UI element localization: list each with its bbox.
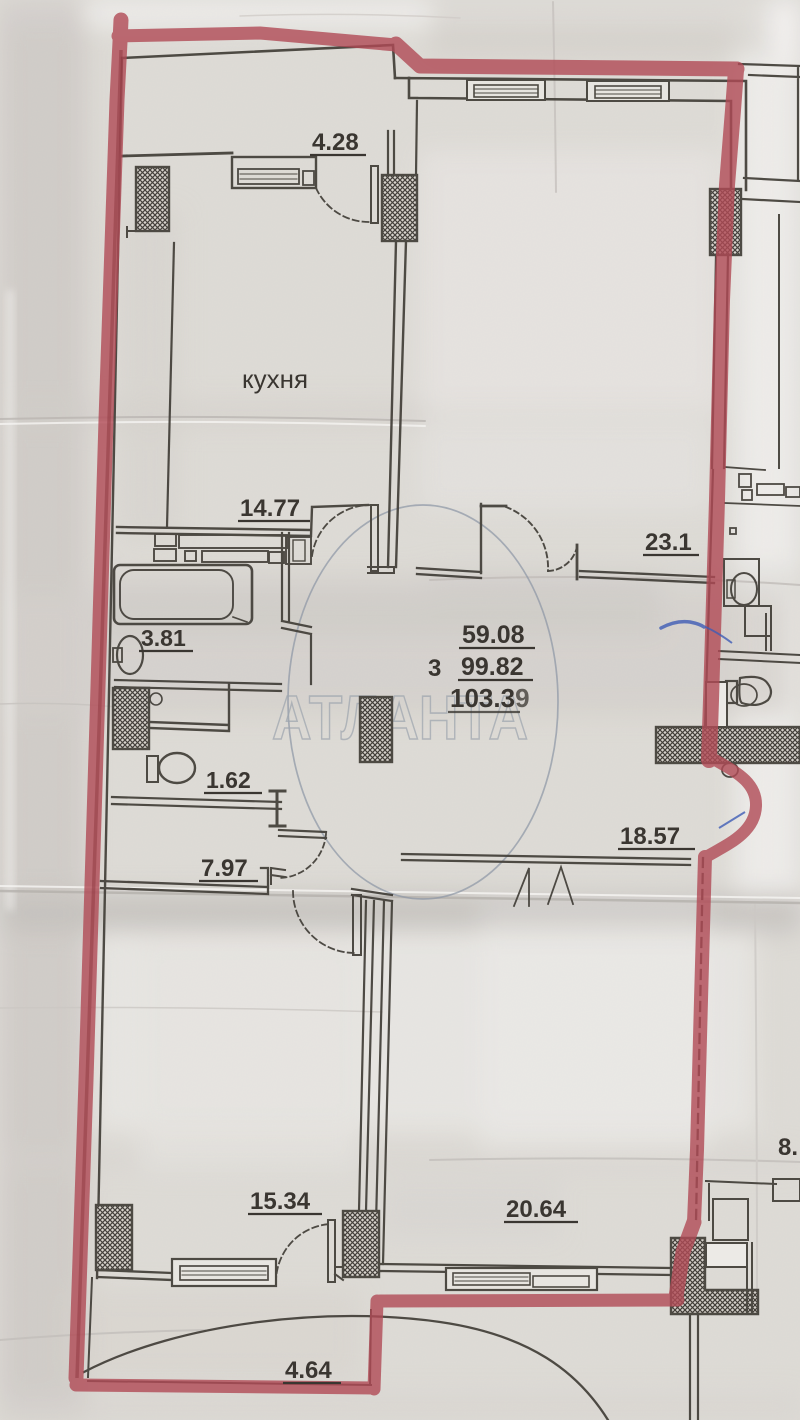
svg-text:14.77: 14.77 [240,495,300,522]
svg-text:59.08: 59.08 [462,621,525,649]
svg-text:4.28: 4.28 [312,129,359,156]
svg-text:99.82: 99.82 [461,653,524,681]
svg-text:15.34: 15.34 [250,1188,311,1215]
svg-text:23.1: 23.1 [645,529,692,556]
svg-text:1.62: 1.62 [206,767,251,793]
svg-text:103.39: 103.39 [450,683,530,713]
svg-text:3.81: 3.81 [141,625,186,651]
svg-text:8.: 8. [778,1134,798,1161]
svg-text:18.57: 18.57 [620,823,680,850]
svg-text:7.97: 7.97 [201,855,248,882]
svg-text:20.64: 20.64 [506,1196,567,1223]
svg-text:3: 3 [428,655,441,682]
svg-text:4.64: 4.64 [285,1357,332,1384]
svg-text:кухня: кухня [242,364,308,394]
